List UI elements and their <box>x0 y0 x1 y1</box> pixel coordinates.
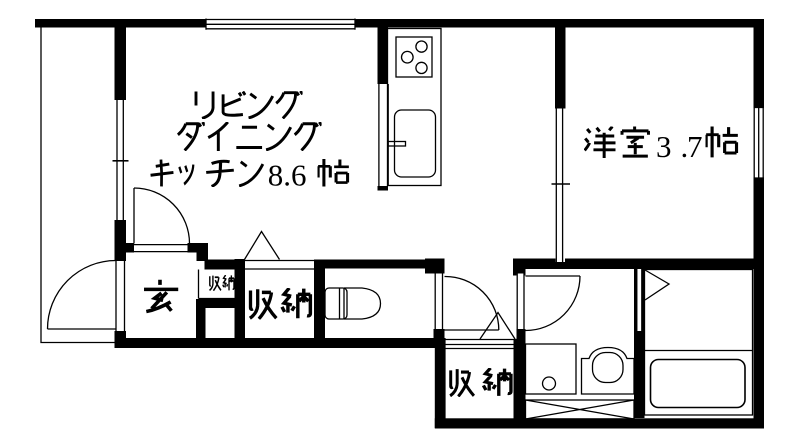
svg-text:8.6: 8.6 <box>268 158 307 193</box>
svg-text:3: 3 <box>656 129 672 164</box>
svg-text:7: 7 <box>687 129 703 164</box>
